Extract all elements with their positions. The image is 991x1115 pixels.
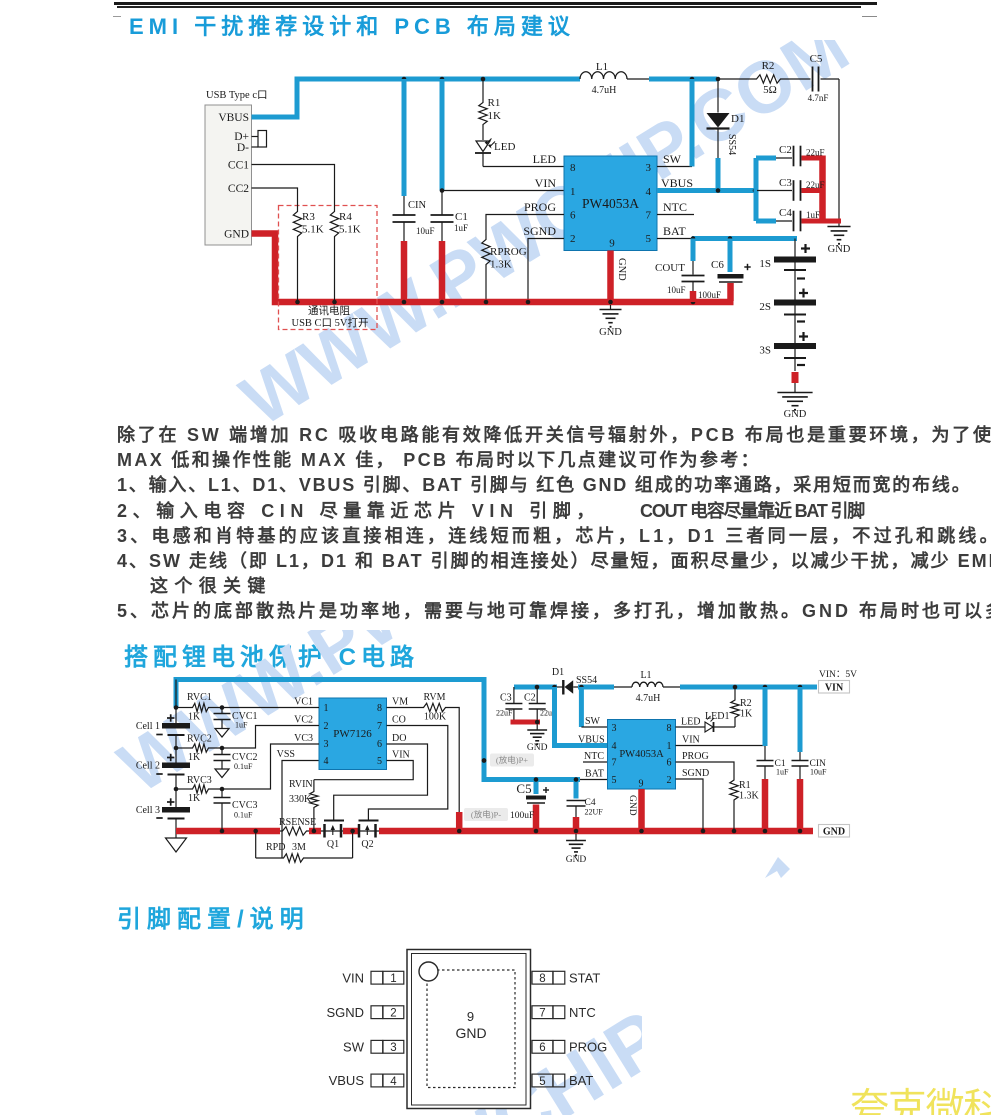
svg-text:LED: LED (681, 717, 700, 728)
svg-text:2: 2 (667, 775, 672, 786)
svg-text:4.7uH: 4.7uH (636, 693, 661, 704)
svg-text:6: 6 (539, 1042, 545, 1054)
svg-text:330K: 330K (289, 794, 312, 805)
svg-text:SS54: SS54 (576, 675, 597, 686)
svg-text:BAT: BAT (569, 1073, 593, 1088)
svg-text:RPROG: RPROG (490, 246, 527, 258)
svg-text:6: 6 (377, 739, 382, 750)
svg-text:8: 8 (539, 973, 545, 985)
svg-text:L1: L1 (596, 61, 608, 73)
svg-text:1uF: 1uF (806, 210, 820, 220)
svg-text:7: 7 (612, 758, 617, 769)
svg-text:GND: GND (616, 258, 627, 281)
svg-text:VBUS: VBUS (218, 112, 249, 124)
svg-text:USB C口 5V打开: USB C口 5V打开 (291, 316, 368, 329)
svg-text:RVC1: RVC1 (187, 692, 212, 703)
svg-text:5Ω: 5Ω (763, 84, 777, 96)
svg-text:GND: GND (527, 743, 548, 753)
svg-text:CC1: CC1 (228, 160, 249, 172)
svg-text:GND: GND (224, 229, 249, 241)
svg-text:PW7126: PW7126 (333, 728, 372, 740)
svg-text:GND: GND (823, 827, 845, 838)
svg-text:STAT: STAT (569, 970, 600, 985)
svg-text:8: 8 (570, 162, 576, 174)
svg-text:1K: 1K (188, 752, 201, 763)
svg-text:1K: 1K (488, 110, 502, 122)
svg-text:1uF: 1uF (454, 223, 468, 233)
svg-text:5: 5 (377, 756, 382, 767)
svg-text:CO: CO (392, 715, 406, 726)
svg-text:100uF: 100uF (510, 811, 534, 821)
svg-text:2S: 2S (759, 301, 771, 313)
svg-text:10uF: 10uF (810, 768, 827, 777)
svg-text:GND: GND (784, 409, 807, 420)
svg-text:SGND: SGND (523, 224, 556, 238)
svg-text:3: 3 (324, 739, 329, 750)
svg-text:Cell 3: Cell 3 (136, 805, 160, 816)
svg-text:COUT: COUT (655, 262, 685, 274)
svg-text:CVC3: CVC3 (232, 800, 258, 811)
svg-text:(放电)P+: (放电)P+ (496, 755, 528, 765)
svg-text:GND: GND (828, 244, 851, 255)
svg-text:4: 4 (324, 756, 329, 767)
svg-text:PROG: PROG (569, 1040, 607, 1055)
svg-text:1.3K: 1.3K (739, 791, 760, 802)
svg-text:C6: C6 (711, 259, 724, 271)
svg-text:CIN: CIN (408, 200, 427, 211)
svg-text:VC3: VC3 (294, 733, 313, 744)
svg-text:C3: C3 (779, 177, 792, 189)
svg-text:USB Type c口: USB Type c口 (206, 90, 268, 101)
svg-text:22uF: 22uF (806, 180, 825, 190)
svg-text:4.7uH: 4.7uH (592, 85, 617, 96)
svg-text:9: 9 (467, 1009, 474, 1024)
svg-text:PROG: PROG (682, 751, 709, 762)
svg-text:10uF: 10uF (416, 226, 435, 236)
svg-text:3S: 3S (759, 345, 771, 357)
svg-text:5.1K: 5.1K (302, 224, 324, 236)
svg-text:5.1K: 5.1K (339, 224, 361, 236)
svg-text:L1: L1 (640, 670, 651, 681)
svg-text:R1: R1 (488, 97, 501, 109)
svg-text:6: 6 (667, 758, 672, 769)
svg-text:8: 8 (377, 703, 382, 714)
svg-text:D-: D- (237, 142, 249, 154)
svg-text:R4: R4 (339, 211, 352, 223)
svg-text:VIN: VIN (535, 176, 557, 190)
svg-text:1uF: 1uF (235, 721, 248, 730)
svg-text:1K: 1K (188, 793, 201, 804)
svg-text:GND: GND (627, 795, 637, 816)
svg-text:RSENSE: RSENSE (279, 817, 316, 828)
svg-text:C5: C5 (516, 781, 531, 796)
svg-text:LED: LED (494, 141, 515, 153)
svg-text:VBUS: VBUS (329, 1073, 365, 1088)
svg-text:Q2: Q2 (361, 839, 373, 850)
svg-text:通讯电阻: 通讯电阻 (308, 304, 350, 317)
svg-text:C2: C2 (779, 144, 792, 156)
svg-text:4: 4 (646, 186, 652, 198)
svg-text:1.3K: 1.3K (490, 259, 512, 271)
svg-text:VIN：5V: VIN：5V (819, 670, 857, 680)
svg-text:SGND: SGND (326, 1005, 364, 1020)
svg-text:22uF: 22uF (496, 709, 513, 718)
svg-text:GND: GND (455, 1025, 486, 1041)
svg-text:6: 6 (570, 210, 576, 222)
svg-text:R3: R3 (302, 211, 315, 223)
svg-text:1uF: 1uF (776, 768, 789, 777)
svg-text:GND: GND (599, 327, 622, 338)
svg-text:C4: C4 (585, 798, 596, 808)
svg-text:1: 1 (390, 973, 396, 985)
svg-text:9: 9 (639, 779, 644, 790)
svg-text:7: 7 (377, 721, 382, 732)
svg-text:C4: C4 (779, 207, 792, 219)
svg-text:SW: SW (663, 152, 682, 166)
svg-text:NTC: NTC (569, 1005, 596, 1020)
svg-text:NTC: NTC (584, 751, 604, 762)
svg-text:Cell 1: Cell 1 (136, 721, 160, 732)
svg-text:22UF: 22UF (585, 808, 604, 817)
svg-text:D1: D1 (552, 667, 564, 678)
svg-text:VIN: VIN (682, 735, 700, 746)
svg-text:SGND: SGND (682, 768, 709, 779)
svg-text:22uF: 22uF (806, 148, 825, 158)
svg-text:R2: R2 (762, 60, 775, 72)
svg-text:R2: R2 (740, 698, 752, 709)
svg-text:NTC: NTC (663, 200, 687, 214)
svg-text:VIN: VIN (392, 750, 410, 761)
svg-text:BAT: BAT (585, 769, 604, 780)
svg-text:5: 5 (539, 1076, 545, 1088)
svg-text:1: 1 (570, 186, 576, 198)
svg-text:1: 1 (667, 741, 672, 752)
svg-text:RVC2: RVC2 (187, 734, 212, 745)
svg-text:VBUS: VBUS (578, 735, 605, 746)
svg-text:SS54: SS54 (726, 134, 737, 155)
svg-text:VC2: VC2 (294, 715, 313, 726)
svg-text:2: 2 (570, 233, 576, 245)
svg-text:1K: 1K (740, 709, 753, 720)
svg-text:RVM: RVM (424, 692, 446, 703)
svg-text:2: 2 (324, 721, 329, 732)
svg-text:D1: D1 (731, 113, 744, 125)
svg-text:4.7nF: 4.7nF (808, 93, 829, 103)
svg-text:RVC3: RVC3 (187, 775, 212, 786)
svg-text:VM: VM (392, 697, 408, 708)
svg-text:PW4053A: PW4053A (619, 749, 664, 760)
svg-text:GND: GND (566, 855, 587, 865)
svg-text:3: 3 (390, 1042, 396, 1054)
svg-text:C3: C3 (500, 693, 512, 704)
svg-text:R1: R1 (739, 780, 751, 791)
svg-text:3: 3 (646, 162, 652, 174)
svg-text:VBUS: VBUS (661, 176, 693, 190)
svg-text:VIN: VIN (342, 970, 364, 985)
svg-text:Cell 2: Cell 2 (136, 761, 160, 772)
svg-text:3: 3 (612, 723, 617, 734)
svg-text:0.1uF: 0.1uF (234, 811, 253, 820)
svg-text:1S: 1S (759, 258, 771, 270)
svg-text:3M: 3M (292, 842, 306, 853)
svg-text:100K: 100K (424, 712, 447, 723)
svg-text:BAT: BAT (663, 224, 686, 238)
svg-text:2: 2 (390, 1008, 396, 1020)
svg-text:7: 7 (646, 210, 652, 222)
svg-text:4: 4 (612, 741, 617, 752)
svg-text:SW: SW (585, 716, 601, 727)
svg-text:5: 5 (646, 233, 652, 245)
svg-text:(放电)P-: (放电)P- (471, 810, 501, 820)
svg-text:PROG: PROG (524, 200, 556, 214)
svg-text:1: 1 (324, 703, 329, 714)
svg-text:4: 4 (390, 1076, 397, 1088)
svg-text:1K: 1K (188, 712, 201, 723)
svg-text:VSS: VSS (277, 749, 295, 760)
svg-text:C5: C5 (810, 53, 823, 65)
svg-text:C2: C2 (524, 693, 536, 704)
svg-text:Q1: Q1 (327, 839, 339, 850)
svg-text:DO: DO (392, 733, 406, 744)
svg-text:10uF: 10uF (667, 285, 686, 295)
svg-text:5: 5 (612, 775, 617, 786)
svg-text:VIN: VIN (825, 683, 844, 694)
svg-text:C1: C1 (455, 211, 468, 223)
svg-text:9: 9 (609, 238, 615, 250)
svg-text:LED: LED (533, 152, 557, 166)
svg-text:RVIN: RVIN (289, 779, 313, 790)
svg-text:8: 8 (667, 723, 672, 734)
svg-text:CC2: CC2 (228, 183, 249, 195)
svg-text:SW: SW (343, 1040, 365, 1055)
svg-text:7: 7 (539, 1008, 545, 1020)
svg-text:PW4053A: PW4053A (582, 196, 639, 211)
svg-text:VC1: VC1 (294, 697, 313, 708)
svg-text:0.1uF: 0.1uF (234, 762, 253, 771)
svg-text:LED1: LED1 (705, 711, 729, 722)
svg-text:100uF: 100uF (698, 290, 721, 300)
